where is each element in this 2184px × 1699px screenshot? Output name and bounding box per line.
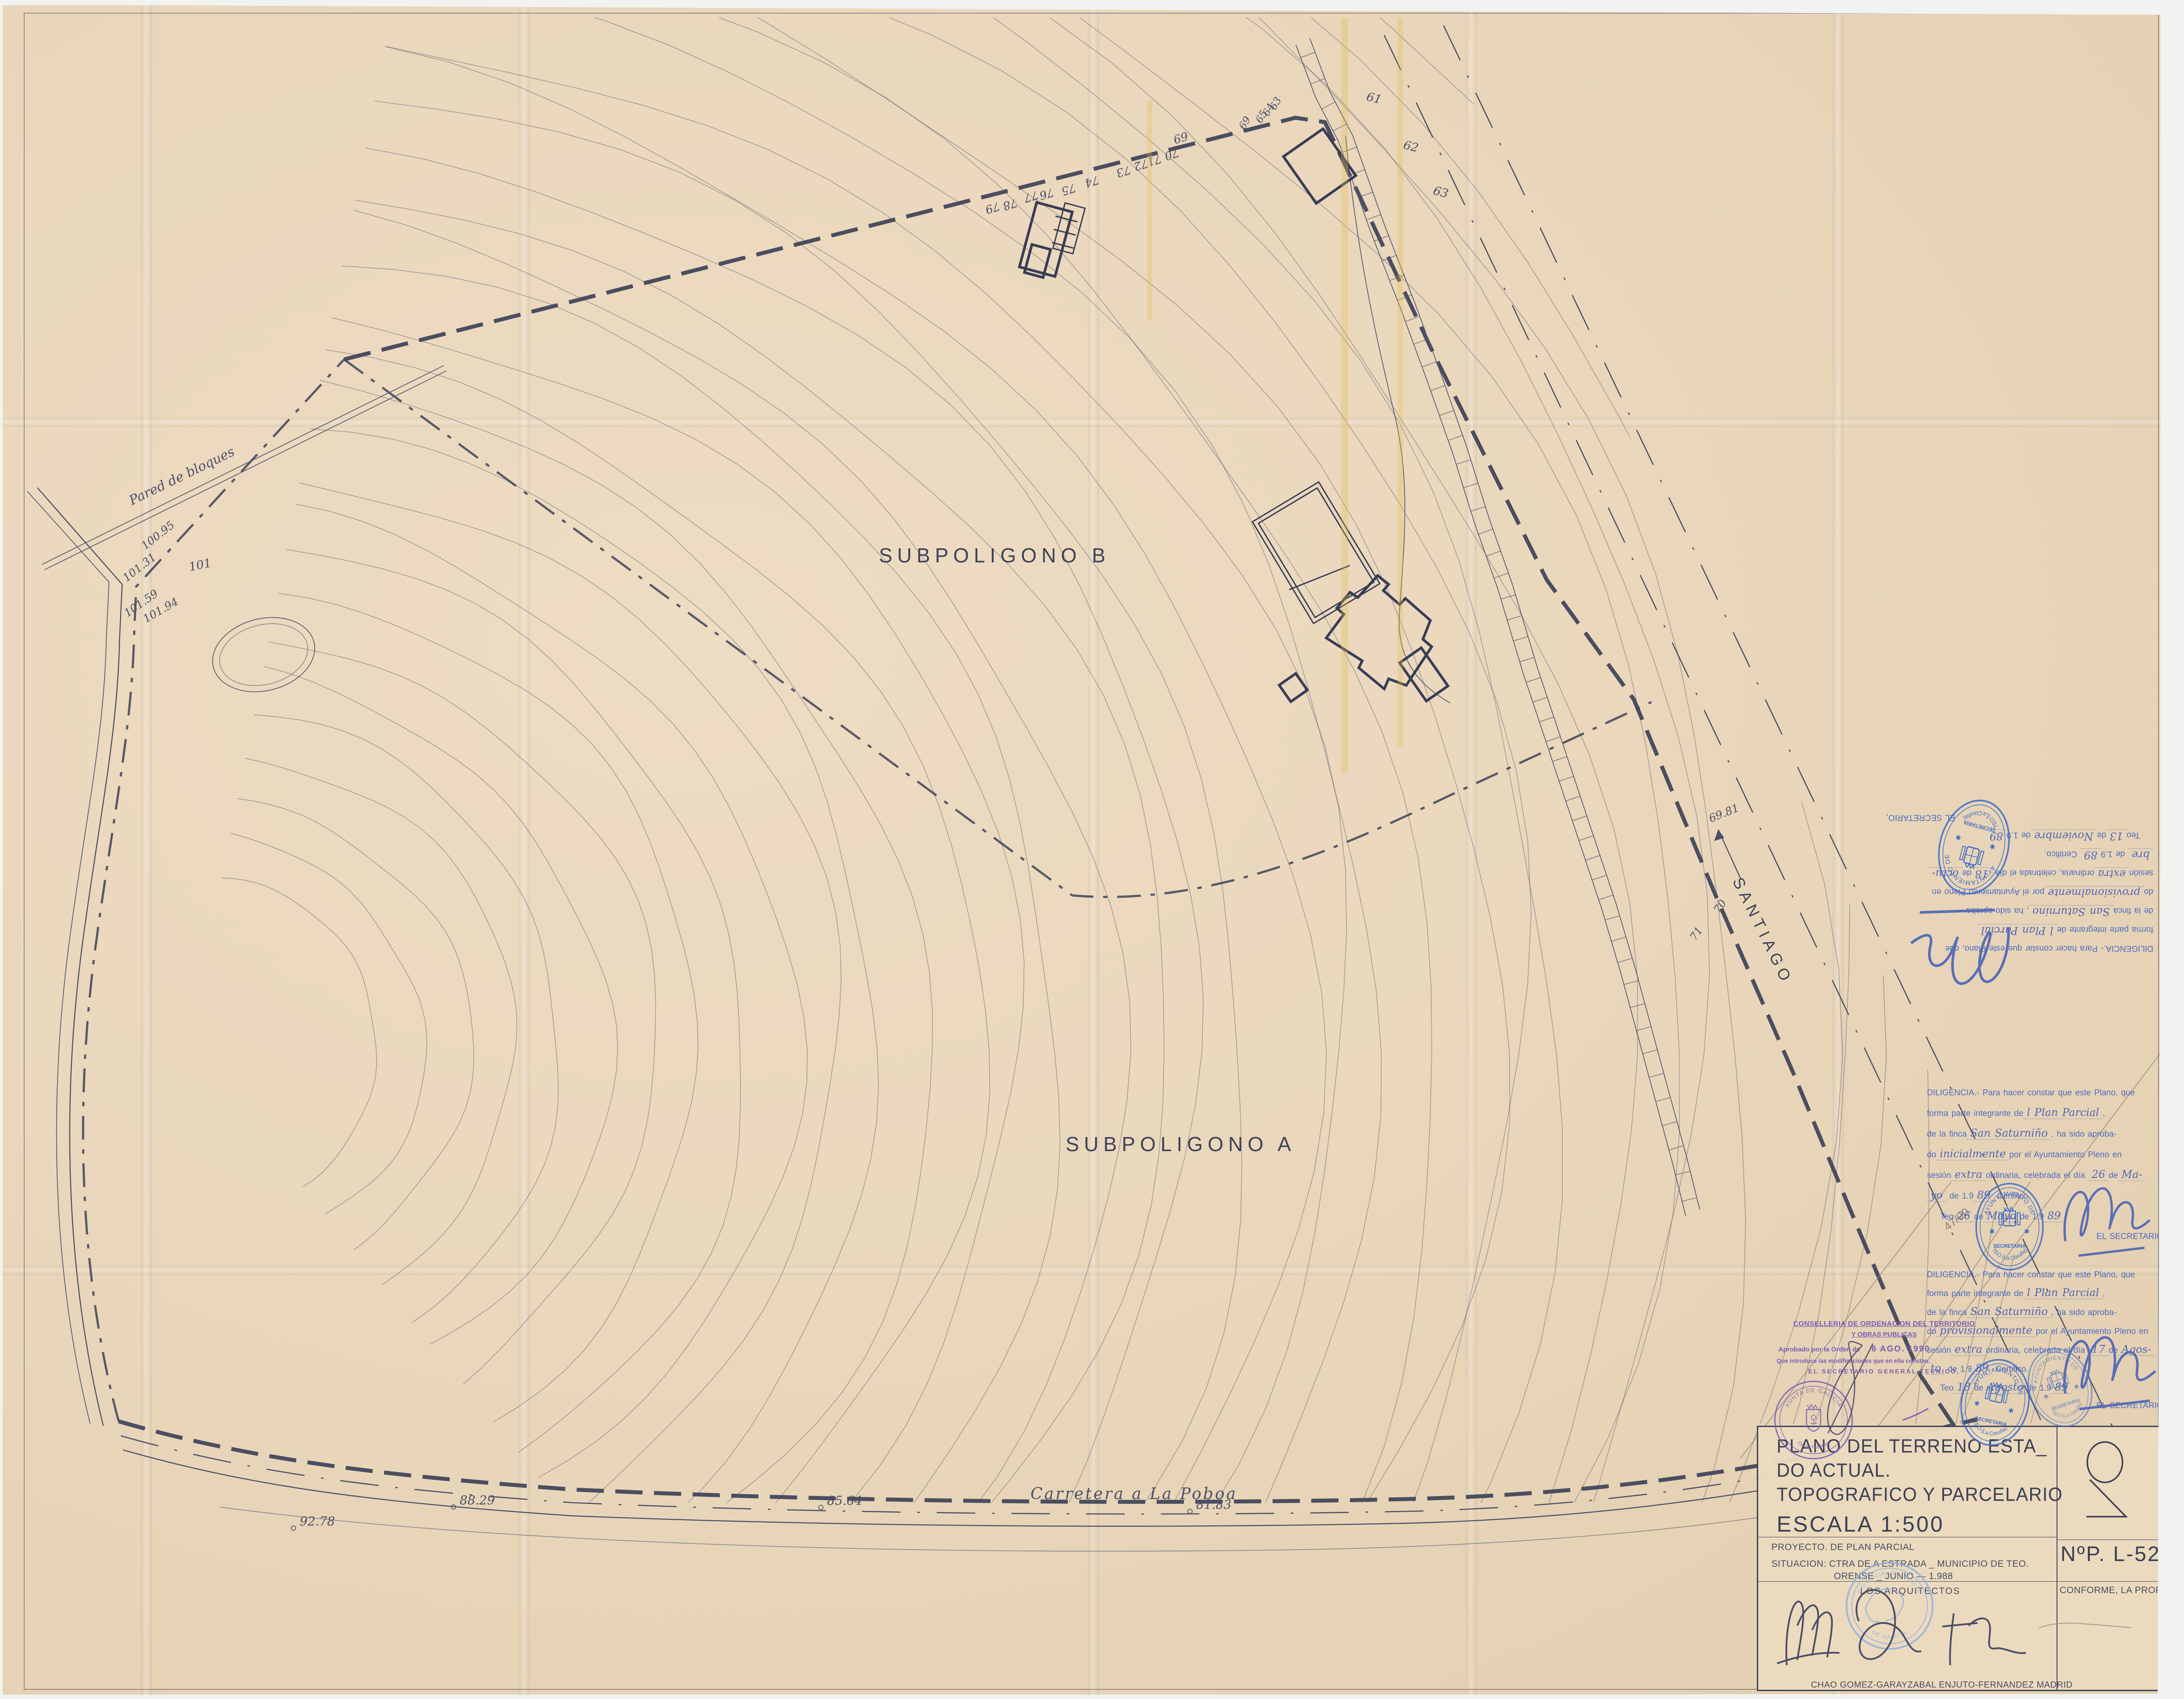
pond-outline — [205, 607, 323, 702]
path-rung — [1552, 757, 1567, 761]
handwritten-aprobado: provisionalmente — [2044, 886, 2144, 899]
form-text: ordinaria, celebrada el día — [1986, 1171, 2085, 1180]
form-text: forma parte integrante de — [1927, 1109, 2023, 1118]
form-text: , ha sido aproba- — [1964, 906, 2029, 915]
path-rung — [1545, 737, 1560, 742]
contour-labels-right: 61 62 63 — [1365, 90, 1450, 201]
form-text: de la finca — [1927, 1308, 1967, 1317]
path-rung — [1618, 958, 1633, 963]
form-text: , — [2103, 1289, 2105, 1298]
path-rung — [1430, 385, 1445, 391]
path-rung — [1366, 214, 1381, 220]
contour-line — [342, 266, 1060, 1698]
handwritten-teo-anio: 89 — [1986, 830, 2007, 842]
form-text: de la finca — [1927, 1130, 1967, 1139]
path-rung — [1636, 1027, 1651, 1031]
form-text: de la finca — [2113, 906, 2153, 915]
path-rung — [1592, 875, 1607, 880]
path-rung — [1321, 102, 1335, 109]
handwritten-plan: l Plan Parcial — [1977, 924, 2057, 937]
scanned-plan-page: SUBPOLIGONO B SUBPOLIGONO A Carretera a … — [0, 0, 2184, 1699]
plan-number: NºP. L-528 — [2061, 1542, 2173, 1566]
path-rung — [1585, 855, 1600, 860]
spot-marker — [291, 1526, 296, 1530]
block-wall — [44, 371, 446, 570]
building-tiny — [1279, 674, 1307, 702]
contour-line — [374, 101, 1242, 1699]
path-rung — [1578, 836, 1593, 840]
handwritten-plan: l Plan Parcial — [2023, 1106, 2102, 1119]
path-rung — [1501, 595, 1516, 599]
plan-title-line3: TOPOGRAFICO Y PARCELARIO — [1777, 1482, 2063, 1507]
form-text: Teo — [1940, 1212, 1954, 1221]
contour-label-left: 101 — [188, 556, 213, 574]
contour-labels-top: 79 78 77 76 75 74 73 72 71 70 69 — [983, 129, 1189, 216]
form-text: de 1.9 — [2020, 1212, 2044, 1221]
path-rung — [1439, 410, 1454, 416]
path-rung — [1624, 981, 1639, 985]
form-text: Certifico. — [1995, 1365, 2028, 1374]
hatched-path — [1296, 39, 1700, 1216]
building-central-double — [1252, 482, 1380, 623]
form-text: , ha sido aproba- — [2051, 1130, 2117, 1139]
handwritten-teo-mes: Agosto — [1983, 1381, 2027, 1394]
handwritten-teo-anio: 89 — [2051, 1381, 2072, 1394]
contour-line — [264, 667, 618, 1344]
path-rung — [1565, 796, 1580, 801]
contour-line — [385, 47, 1347, 1699]
contour-line — [452, 0, 1709, 1699]
contour-line — [475, 0, 1843, 1699]
path-rung — [1405, 316, 1420, 322]
handwritten-dia: 26 — [2088, 1168, 2109, 1181]
path-rung — [1463, 483, 1478, 488]
subpolygon-divider — [344, 359, 1651, 897]
contour-line — [431, 0, 1563, 1699]
path-rung — [1605, 916, 1620, 920]
contour-line — [238, 798, 474, 1250]
contour-line — [472, 0, 1850, 1699]
path-rung — [1682, 1198, 1697, 1202]
form-text: de — [2109, 1171, 2118, 1180]
svg-text:73: 73 — [1114, 163, 1132, 179]
path-rung — [1486, 551, 1501, 556]
svg-text:92.78: 92.78 — [300, 1514, 335, 1529]
svg-text:62: 62 — [1402, 138, 1420, 155]
form-text: sesión — [2129, 868, 2153, 877]
spot-marker — [1188, 1509, 1192, 1514]
block-wall — [42, 366, 444, 565]
form-text: Teo — [2126, 830, 2140, 840]
handwritten-teo-dia: 18 — [1954, 1381, 1974, 1394]
place-date-label: ORENSE _ JUNIO — 1.988 — [1834, 1571, 1953, 1582]
contour-line — [278, 593, 698, 1422]
contour-line — [355, 200, 1164, 1699]
form-text: de — [1962, 868, 1971, 877]
path-rung — [1539, 717, 1554, 722]
svg-text:70: 70 — [1163, 145, 1180, 162]
form-text: de 1.9 — [2006, 830, 2031, 840]
date-stamp: 6 AGO. 1990 — [1872, 1344, 1930, 1354]
handwritten-teo-dia: 13 — [2106, 830, 2127, 842]
form-text-secretario: EL SECRETARIO, — [1886, 813, 1955, 822]
form-text: de — [2097, 830, 2106, 840]
handwritten-mes2: bre — [2128, 848, 2153, 861]
form-text: de 1.9 — [1949, 1192, 1974, 1201]
handwritten-teo-mes: Mayo — [1983, 1210, 2020, 1222]
tape-strip — [1147, 101, 1152, 321]
architects-names: CHAO GOMEZ-GARAYZABAL ENJUTO-FERNANDEZ M… — [1811, 1680, 2073, 1690]
svg-text:69: 69 — [1172, 129, 1189, 145]
title-block-rule — [1758, 1537, 2057, 1537]
path-rung — [1456, 460, 1471, 464]
project-label: PROYECTO. DE PLAN PARCIAL — [1771, 1542, 1915, 1553]
form-text: DILIGENCIA.- Para hacer constar que este… — [1927, 1088, 2135, 1098]
lane-edge-2 — [27, 491, 109, 1424]
handwritten-dia: 17 — [2088, 1343, 2109, 1356]
contour-line — [268, 642, 656, 1384]
handwritten-aprobado: inicialmente — [1936, 1148, 2009, 1160]
building-small — [1400, 648, 1448, 701]
path-rung — [1478, 529, 1493, 534]
contour-line — [353, 210, 1131, 1699]
handwritten-teo-dia: 26 — [1954, 1210, 1974, 1222]
path-rung — [1300, 52, 1315, 58]
path-rung — [1494, 573, 1509, 578]
contour-line — [231, 833, 427, 1214]
handwritten-mes2: yo — [1927, 1189, 1946, 1202]
subpoligono-a-label: SUBPOLIGONO A — [1066, 1133, 1296, 1156]
handwritten-mes: Agos- — [2118, 1343, 2155, 1356]
svg-text:70: 70 — [1711, 897, 1729, 915]
plan-title: PLANO DEL TERRENO ESTA_ DO ACTUAL. TOPOG… — [1777, 1434, 2063, 1507]
form-text-secretario: EL SECRETARIO, — [2097, 1232, 2166, 1241]
contour-line — [442, 0, 1638, 1699]
lane-edge — [37, 488, 122, 1426]
path-rung — [1655, 1098, 1671, 1101]
tape-strip — [1397, 18, 1403, 747]
handwritten-mes: octu- — [1928, 867, 1962, 880]
path-rung — [1559, 776, 1574, 781]
svg-text:85.64: 85.64 — [827, 1493, 862, 1508]
contour-line — [365, 148, 1203, 1699]
contour-line — [399, 0, 1382, 1699]
form-text: de — [1974, 1384, 1983, 1393]
conselleria-line5: EL SECRETARIO GENERAL TECNICO, — [1773, 1368, 1995, 1375]
parcel-boundary-left — [83, 359, 344, 1421]
handwritten-teo-anio: 89 — [2044, 1210, 2064, 1222]
form-text: de 1.9 — [2101, 849, 2125, 859]
path-rung — [1643, 1050, 1658, 1054]
santiago-label: SANTIAGO — [1729, 875, 1796, 988]
building-top-main — [1019, 203, 1085, 278]
svg-text:63: 63 — [1432, 184, 1450, 201]
handwritten-teo-mes: Noviembre — [2031, 830, 2097, 842]
handwritten-anio: 89 — [2080, 848, 2101, 861]
diligencia-block-inverted: DILIGENCIA.- Para hacer constar que este… — [1868, 808, 2153, 957]
form-text-secretario: EL SECRETARIO, — [2097, 1401, 2166, 1410]
form-text: ordinaria, celebrada el día — [1986, 1346, 2085, 1355]
handwritten-sesion: extra — [2094, 867, 2129, 880]
path-rung — [1649, 1073, 1664, 1077]
tape-strip — [1341, 18, 1348, 773]
contour-line — [319, 380, 932, 1578]
path-rung — [1598, 895, 1613, 900]
path-rail — [1310, 39, 1700, 1210]
svg-text:74: 74 — [1083, 173, 1100, 189]
path-rung — [1448, 435, 1463, 441]
path-rung — [1532, 697, 1547, 702]
contour-line — [254, 715, 559, 1322]
subpoligono-b-label: SUBPOLIGONO B — [879, 544, 1110, 567]
title-block: PLANO DEL TERRENO ESTA_ DO ACTUAL. TOPOG… — [1757, 1426, 2164, 1691]
form-text: do — [1927, 1150, 1936, 1159]
spot-marker — [819, 1505, 823, 1510]
form-text: Certifico. — [2044, 849, 2077, 859]
svg-text:88.29: 88.29 — [460, 1493, 495, 1507]
title-block-rule — [2057, 1540, 2162, 1540]
form-text: , ha sido aproba- — [2051, 1308, 2117, 1317]
path-rung — [1611, 937, 1626, 941]
svg-text:100.95: 100.95 — [139, 518, 177, 552]
form-text: por el Ayuntamiento Pleno en — [2009, 1150, 2122, 1159]
contour-line — [295, 504, 807, 1478]
scale-label: ESCALA 1:500 — [1777, 1511, 1945, 1537]
conselleria-line1: CONSELLERIA DE ORDENACION DEL TERRITORIO — [1773, 1320, 1995, 1328]
handwritten-dia: 18 — [1971, 867, 1992, 880]
form-text: DILIGENCIA.- Para hacer constar que este… — [1927, 1270, 2135, 1279]
plan-title-line2: DO ACTUAL. — [1777, 1458, 2063, 1482]
path-rung — [1513, 637, 1528, 641]
scan-edge-left — [0, 0, 3, 1699]
form-text: Teo — [1940, 1384, 1954, 1393]
svg-text:78: 78 — [1001, 196, 1019, 212]
contour-line — [496, 0, 1929, 1699]
path-rung — [1526, 677, 1541, 682]
form-text: de — [2109, 1346, 2118, 1355]
form-text: por el Ayuntamiento Pleno en — [2036, 1327, 2148, 1336]
spot-elevation-santiago: 69.81 — [1707, 801, 1741, 825]
handwritten-finca: San Saturniño — [1967, 1305, 2051, 1318]
svg-text:79: 79 — [983, 199, 1001, 216]
form-text: DILIGENCIA.- Para hacer constar que este… — [1945, 944, 2153, 953]
form-text: de 1.9 — [2027, 1384, 2051, 1393]
title-block-rule — [1758, 1581, 2162, 1582]
conselleria-line2: Y OBRAS PUBLICAS — [1773, 1331, 1995, 1338]
form-text: forma parte integrante de — [1927, 1289, 2023, 1298]
form-text: forma parte integrante de — [2057, 925, 2153, 934]
path-rung — [1520, 657, 1535, 662]
path-rail — [1296, 45, 1686, 1216]
path-rung — [1422, 362, 1437, 367]
form-text: sesión — [1927, 1171, 1951, 1180]
contour-line — [332, 318, 1024, 1653]
diligencia-block-1: DILIGENCIA.- Para hacer constar que este… — [1927, 1083, 2184, 1246]
contour-line — [326, 350, 990, 1615]
svg-text:71: 71 — [1687, 924, 1705, 942]
handwritten-sesion: extra — [1951, 1168, 1986, 1181]
path-rung — [1669, 1146, 1684, 1150]
form-text: , — [2103, 1109, 2105, 1118]
form-text: Certifico. — [1997, 1192, 2030, 1201]
conselleria-stamp-block: CONSELLERIA DE ORDENACION DEL TERRITORIO… — [1773, 1320, 1995, 1375]
handwritten-mes: Ma- — [2118, 1168, 2146, 1181]
conselleria-line3: Aprobado por la Orden de6 AGO. 1990 — [1773, 1344, 1995, 1354]
path-rung — [1470, 507, 1485, 511]
handwritten-plan: l Plan Parcial — [2023, 1286, 2102, 1299]
svg-text:61: 61 — [1365, 90, 1383, 107]
form-text: por el Ayuntamiento Pleno en — [1932, 887, 2044, 896]
svg-text:81.83: 81.83 — [1196, 1497, 1231, 1512]
svg-text:76: 76 — [1038, 185, 1055, 202]
situation-label: SITUACION: CTRA DE A ESTRADA _ MUNICIPIO… — [1771, 1559, 2029, 1569]
path-rung — [1507, 616, 1522, 620]
contour-line — [245, 758, 517, 1285]
path-rung — [1572, 816, 1587, 821]
pond-inner — [213, 615, 315, 694]
contour-line — [408, 0, 1432, 1699]
contour-line — [222, 878, 377, 1187]
form-text: do — [2144, 887, 2153, 896]
architects-label: LOS ARQUITECTOS — [1860, 1586, 1960, 1597]
contour-line — [417, 0, 1531, 1699]
handwritten-finca: San Saturniño — [1967, 1127, 2051, 1140]
contour-line — [287, 550, 740, 1453]
form-line: DILIGENCIA.- Para hacer constar que este… — [1927, 1083, 2184, 1103]
path-rung — [1662, 1122, 1677, 1126]
handwritten-anio: 89 — [1974, 1189, 1994, 1202]
form-text: de — [1974, 1212, 1983, 1221]
plan-title-line1: PLANO DEL TERRENO ESTA_ — [1777, 1434, 2063, 1458]
handwritten-finca: San Saturnino — [2029, 905, 2113, 918]
conselleria-line4: Que introduce las modificaciones que en … — [1773, 1358, 1995, 1364]
svg-text:75: 75 — [1059, 181, 1077, 197]
form-text: ordinaria, celebrada el día — [1995, 868, 2094, 877]
